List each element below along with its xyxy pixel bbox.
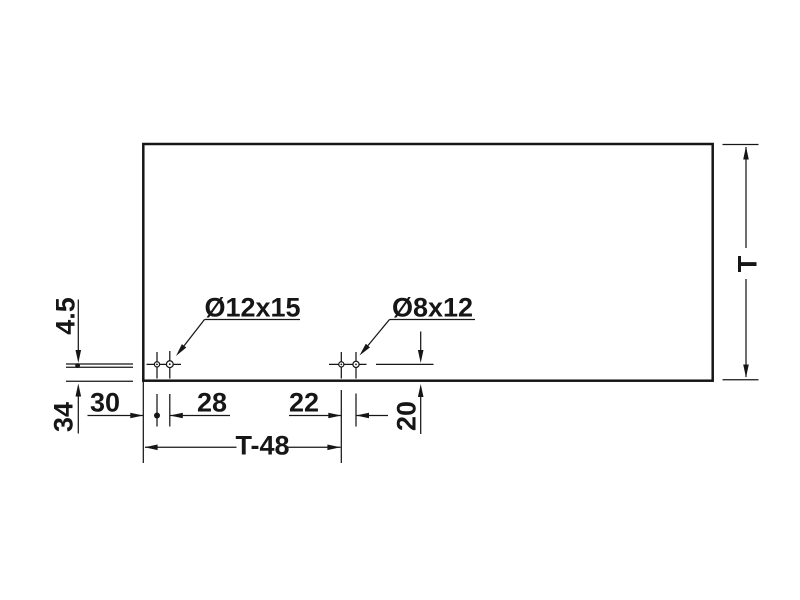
edge-reference-dot bbox=[75, 363, 80, 368]
dim-label-28: 28 bbox=[197, 389, 227, 416]
edge-side-view bbox=[66, 363, 133, 381]
dim-chain-dot bbox=[154, 413, 160, 419]
hole-label-8x12: Ø8x12 bbox=[392, 294, 473, 321]
hole-label-12x15: Ø12x15 bbox=[204, 295, 300, 322]
panel-outline bbox=[143, 144, 712, 381]
dim-label-30: 30 bbox=[90, 389, 120, 416]
technical-drawing-canvas: 4.5 34 30 28 22 20 Ø12x15 Ø8x12 T-48 T bbox=[0, 0, 800, 600]
arrowhead-down bbox=[76, 350, 82, 363]
arrowhead-right bbox=[327, 445, 340, 451]
arrowhead-down bbox=[743, 365, 749, 378]
arrowhead-up bbox=[76, 384, 82, 397]
dim-label-22: 22 bbox=[289, 389, 319, 416]
dim-label-t: T bbox=[735, 255, 762, 272]
dim-label-4-5: 4.5 bbox=[53, 297, 80, 335]
arrowhead-right bbox=[130, 413, 143, 419]
dim-label-34: 34 bbox=[51, 401, 78, 431]
dim-label-20: 20 bbox=[393, 400, 420, 430]
dim-label-t48: T-48 bbox=[235, 432, 289, 459]
arrowhead-right bbox=[328, 413, 341, 419]
arrowhead-up bbox=[418, 384, 424, 397]
